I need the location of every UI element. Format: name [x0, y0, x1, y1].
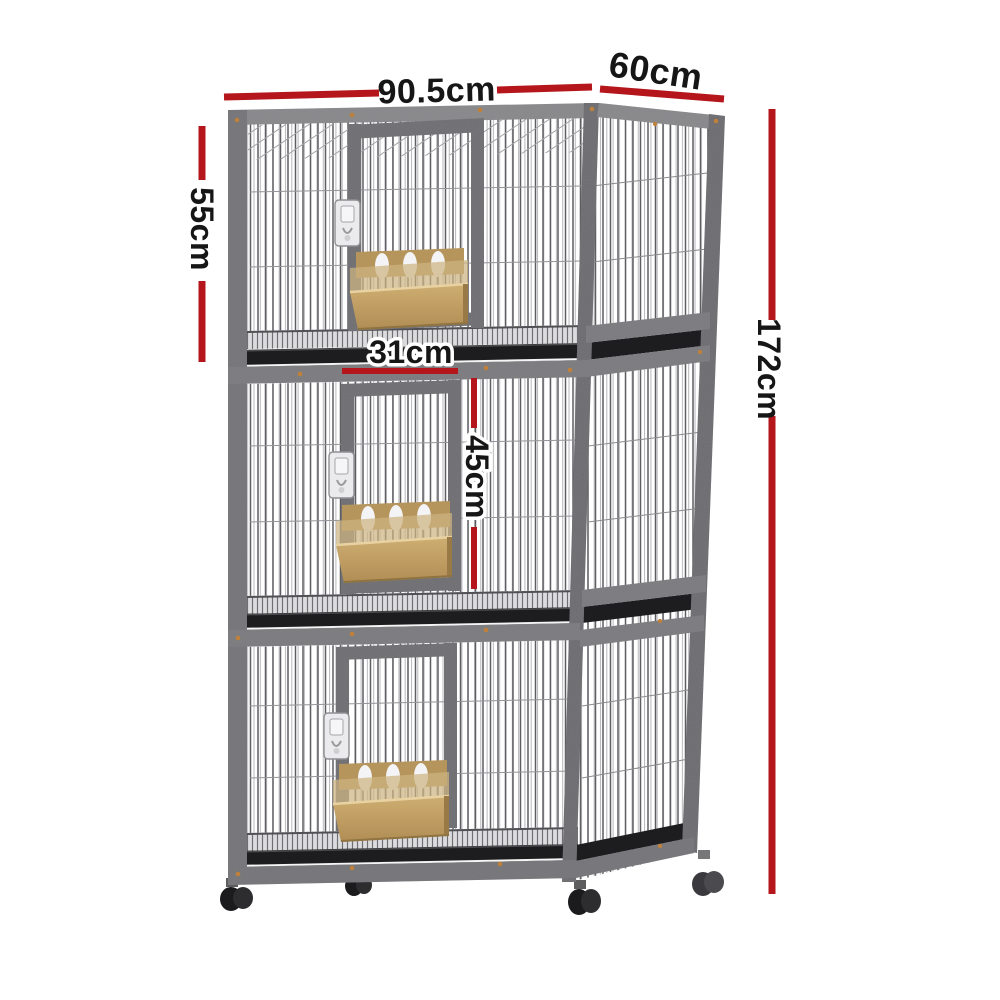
- door-latch-tier-2: [329, 452, 354, 498]
- dimension-label-door-width: 31cm: [369, 334, 453, 370]
- caster-front-right: [568, 880, 601, 915]
- door-latch-tier-1: [335, 200, 360, 246]
- dimension-label-tier-height: 55cm: [184, 187, 220, 271]
- door-latch-tier-3: [324, 713, 349, 759]
- feeder-tier-1: [350, 248, 468, 330]
- frame-left-post: [228, 110, 247, 884]
- feeder-tier-3: [333, 760, 449, 842]
- dimension-label-width: 90.5cm: [377, 70, 496, 111]
- diagram-canvas: 90.5cm 60cm 55cm 31cm 45cm 172cm: [0, 0, 1000, 1000]
- feeder-tier-2: [336, 501, 452, 583]
- dimension-label-total-height: 172cm: [751, 318, 787, 420]
- dimension-label-door-height: 45cm: [459, 435, 495, 519]
- cage-dimension-diagram: 90.5cm 60cm 55cm 31cm 45cm 172cm: [0, 0, 1000, 1000]
- caster-back-right: [692, 850, 724, 896]
